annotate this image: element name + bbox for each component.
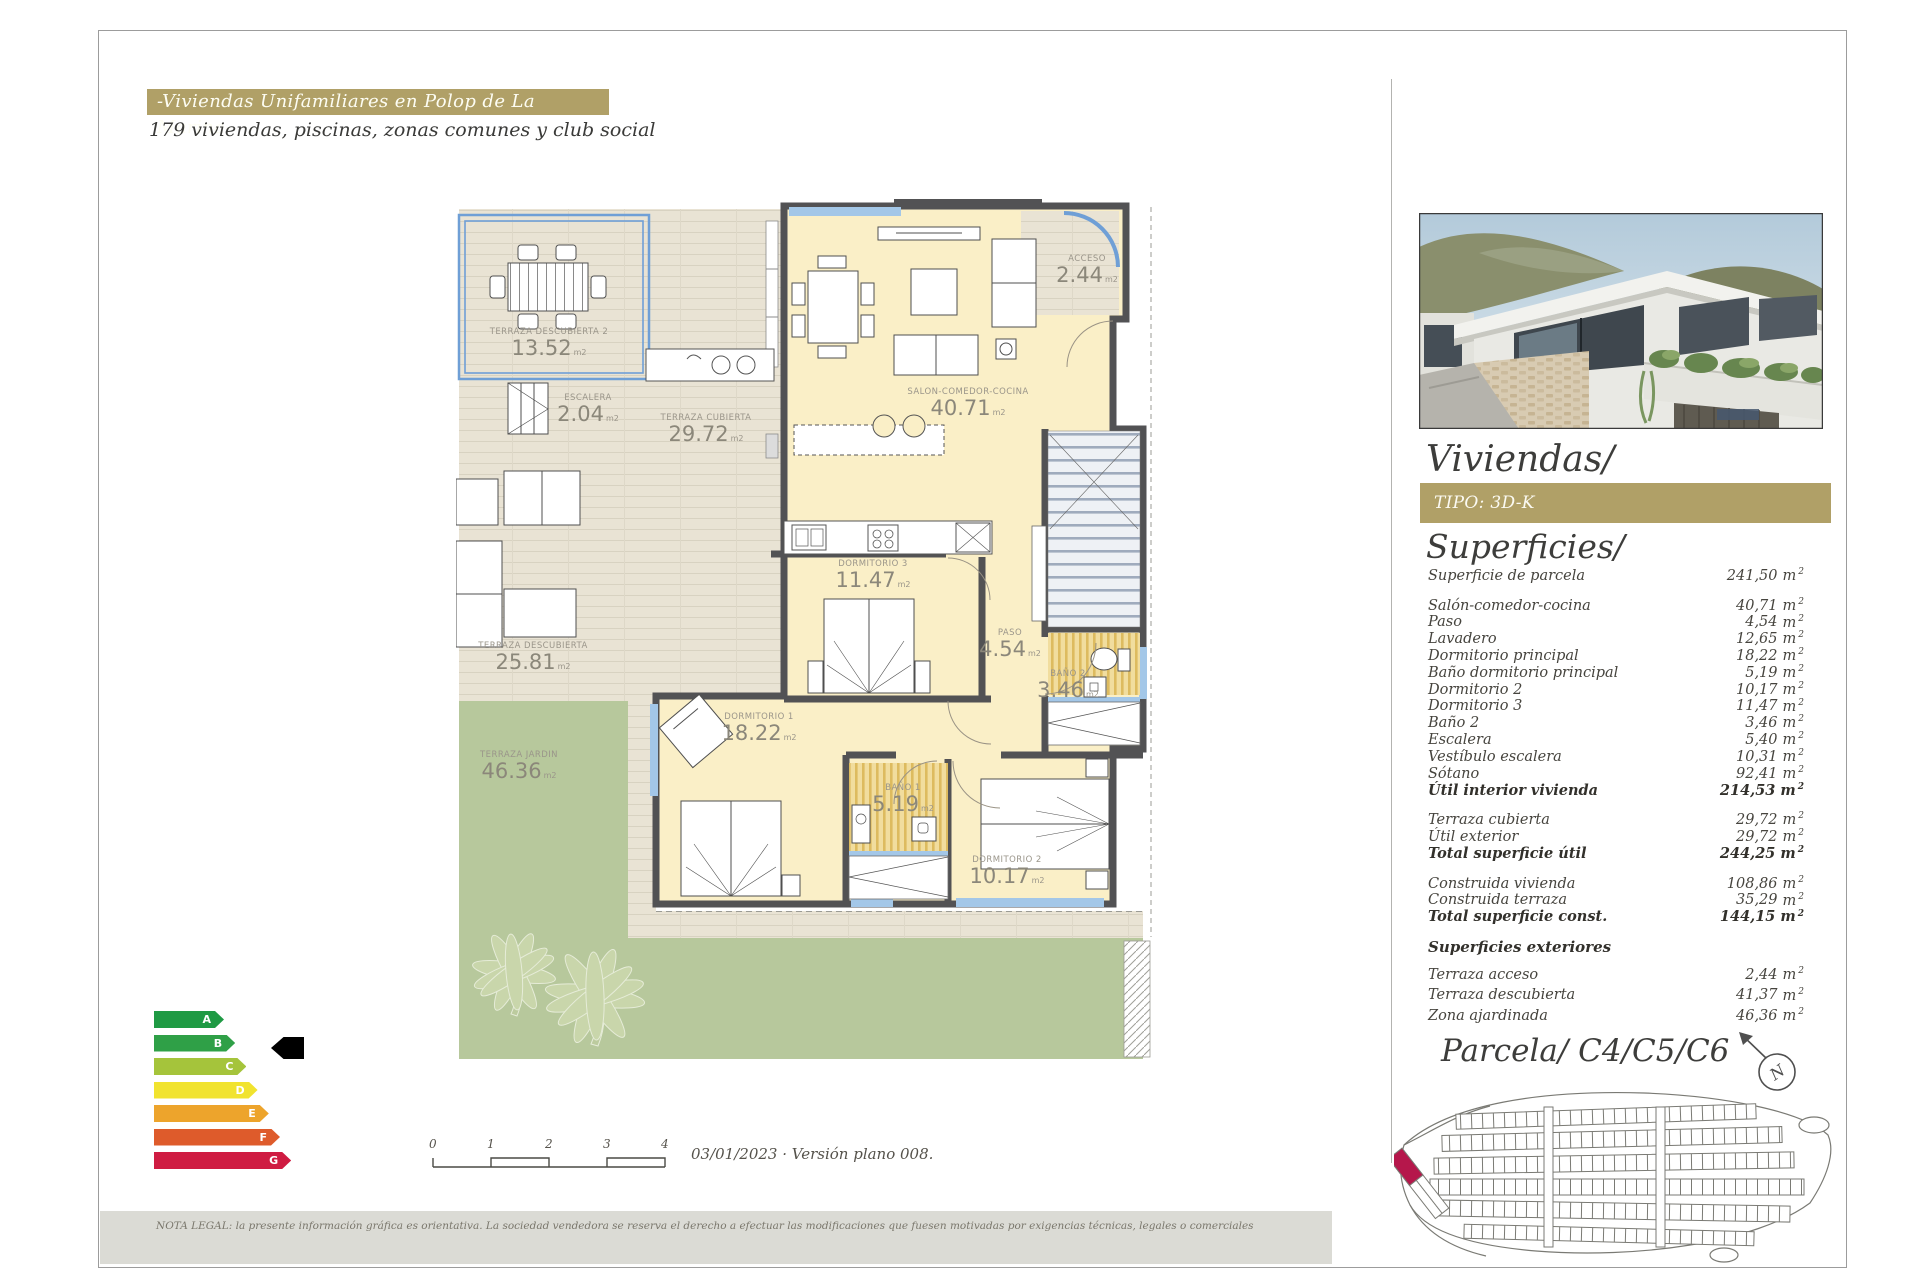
surface-label: Construida vivienda bbox=[1428, 876, 1575, 892]
surface-value: 18,22m2 bbox=[1714, 647, 1804, 664]
superficies-row: Terraza descubierta41,37m2 bbox=[1428, 987, 1804, 1008]
room-area: 46.36m2 bbox=[480, 760, 558, 787]
surface-value: 40,71m2 bbox=[1714, 597, 1804, 614]
site-plan-map bbox=[1394, 1083, 1839, 1275]
room-label-acceso: ACCESO2.44m2 bbox=[1056, 254, 1118, 291]
surface-value: 3,46m2 bbox=[1714, 714, 1804, 731]
room-label-bano-1: BAÑO 15.19m2 bbox=[872, 783, 934, 820]
surface-label: Terraza descubierta bbox=[1428, 987, 1575, 1003]
project-title: Viviendas/ bbox=[1426, 439, 1614, 480]
surface-label: Terraza acceso bbox=[1428, 967, 1538, 983]
room-area: 2.04m2 bbox=[557, 403, 619, 430]
superficies-group: Salón-comedor-cocina40,71m2Paso4,54m2Lav… bbox=[1428, 597, 1804, 799]
legal-note: NOTA LEGAL: la presente información gráf… bbox=[156, 1220, 1306, 1232]
superficies-title: Superficies/ bbox=[1426, 527, 1625, 566]
surface-value: 10,31m2 bbox=[1714, 748, 1804, 765]
brochure-page: { "header": { "title": "-Viviendas Unifa… bbox=[0, 0, 1920, 1280]
floor-plan: TERRAZA DESCUBIERTA 213.52m2ESCALERA2.04… bbox=[456, 199, 1156, 1079]
room-area: 2.44m2 bbox=[1056, 264, 1118, 291]
scale-tick: 0 bbox=[429, 1137, 437, 1151]
room-label-escalera: ESCALERA2.04m2 bbox=[557, 393, 619, 430]
room-label-salon-comedor-cocina: SALON-COMEDOR-COCINA40.71m2 bbox=[907, 387, 1028, 424]
energy-bars: ABCDEFG bbox=[154, 1011, 364, 1169]
room-label-dormitorio-3: DORMITORIO 311.47m2 bbox=[835, 559, 910, 596]
surface-label: Paso bbox=[1428, 614, 1462, 630]
energy-grade-G: G bbox=[154, 1152, 291, 1169]
surface-label: Escalera bbox=[1428, 732, 1492, 748]
energy-grade-F: F bbox=[154, 1129, 280, 1146]
scale-tick: 1 bbox=[487, 1137, 495, 1151]
surface-label: Salón-comedor-cocina bbox=[1428, 598, 1591, 614]
surface-value: 11,47m2 bbox=[1714, 698, 1804, 715]
surface-value: 214,53m2 bbox=[1714, 782, 1804, 799]
superficies-row: Dormitorio 210,17m2 bbox=[1428, 681, 1804, 698]
surface-label: Lavadero bbox=[1428, 631, 1497, 647]
surface-value: 46,36m2 bbox=[1714, 1007, 1804, 1024]
page-sheet: -Viviendas Unifamiliares en Polop de La … bbox=[98, 30, 1847, 1268]
room-label-terraza-descubierta: TERRAZA DESCUBIERTA25.81m2 bbox=[478, 641, 588, 678]
scale-tick: 3 bbox=[603, 1137, 611, 1151]
surface-label: Útil interior vivienda bbox=[1428, 782, 1598, 799]
superficies-group-header: Superficies exteriores bbox=[1428, 938, 1804, 960]
surface-label: Sótano bbox=[1428, 766, 1479, 782]
superficies-row: Zona ajardinada46,36m2 bbox=[1428, 1007, 1804, 1028]
surface-label: Dormitorio 2 bbox=[1428, 682, 1522, 698]
superficies-row: Baño dormitorio principal5,19m2 bbox=[1428, 664, 1804, 681]
version-note: 03/01/2023 · Versión plano 008. bbox=[691, 1145, 933, 1163]
superficies-row: Dormitorio principal18,22m2 bbox=[1428, 647, 1804, 664]
room-label-terraza-cubierta: TERRAZA CUBIERTA29.72m2 bbox=[661, 413, 752, 450]
room-area: 40.71m2 bbox=[907, 397, 1028, 424]
surface-label: Dormitorio principal bbox=[1428, 648, 1579, 664]
superficies-row: Útil interior vivienda214,53m2 bbox=[1428, 782, 1804, 799]
scale-tick: 2 bbox=[545, 1137, 553, 1151]
room-area: 4.54m2 bbox=[979, 638, 1041, 665]
room-label-dormitorio-1: DORMITORIO 118.22m2 bbox=[721, 712, 796, 749]
surface-value: 41,37m2 bbox=[1714, 987, 1804, 1004]
surface-value: 5,19m2 bbox=[1714, 664, 1804, 681]
superficies-row: Paso4,54m2 bbox=[1428, 614, 1804, 631]
surface-value: 35,29m2 bbox=[1714, 892, 1804, 909]
surface-label: Terraza cubierta bbox=[1428, 812, 1550, 828]
subtitle: 179 viviendas, piscinas, zonas comunes y… bbox=[149, 119, 655, 141]
superficies-row: Vestíbulo escalera10,31m2 bbox=[1428, 748, 1804, 765]
superficies-row: Escalera5,40m2 bbox=[1428, 731, 1804, 748]
scale-tick: 4 bbox=[661, 1137, 669, 1151]
superficies-row: Lavadero12,65m2 bbox=[1428, 630, 1804, 647]
energy-grade-B: B bbox=[154, 1035, 235, 1052]
surface-value: 144,15m2 bbox=[1714, 908, 1804, 925]
surface-label: Superficie de parcela bbox=[1428, 568, 1585, 584]
superficies-row: Terraza cubierta29,72m2 bbox=[1428, 811, 1804, 828]
surface-value: 108,86m2 bbox=[1714, 875, 1804, 892]
surface-label: Vestíbulo escalera bbox=[1428, 749, 1562, 765]
parcela-title: Parcela/ C4/C5/C6 bbox=[1441, 1033, 1729, 1069]
energy-grade-D: D bbox=[154, 1082, 258, 1099]
surface-label: Construida terraza bbox=[1428, 892, 1567, 908]
room-area: 29.72m2 bbox=[661, 423, 752, 450]
surface-value: 2,44m2 bbox=[1714, 966, 1804, 983]
energy-rating-label: ABCDEFG bbox=[154, 1011, 364, 1183]
surface-label: Baño dormitorio principal bbox=[1428, 665, 1618, 681]
superficies-group: Superficies exterioresTerraza acceso2,44… bbox=[1428, 938, 1804, 1028]
surface-label: Baño 2 bbox=[1428, 715, 1479, 731]
staircase bbox=[1032, 431, 1140, 627]
panel-divider bbox=[1391, 79, 1392, 1163]
surface-value: 10,17m2 bbox=[1714, 681, 1804, 698]
surface-label: Útil exterior bbox=[1428, 829, 1518, 845]
superficies-group: Superficie de parcela241,50m2 bbox=[1428, 567, 1804, 584]
room-label-bano-2: BAÑO 23.46m2 bbox=[1037, 669, 1099, 706]
surface-value: 92,41m2 bbox=[1714, 765, 1804, 782]
surface-label: Total superficie útil bbox=[1428, 845, 1587, 862]
room-area: 3.46m2 bbox=[1037, 679, 1099, 706]
superficies-row: Construida terraza35,29m2 bbox=[1428, 892, 1804, 909]
superficies-group: Terraza cubierta29,72m2Útil exterior29,7… bbox=[1428, 811, 1804, 861]
room-area: 11.47m2 bbox=[835, 569, 910, 596]
surface-label: Total superficie const. bbox=[1428, 908, 1607, 925]
energy-grade-A: A bbox=[154, 1011, 224, 1028]
superficies-table: Superficie de parcela241,50m2Salón-comed… bbox=[1428, 567, 1804, 1041]
surface-value: 241,50m2 bbox=[1714, 567, 1804, 584]
room-area: 25.81m2 bbox=[478, 651, 588, 678]
tipo-banner: TIPO: 3D-K bbox=[1420, 483, 1831, 523]
superficies-row: Dormitorio 311,47m2 bbox=[1428, 698, 1804, 715]
energy-grade-E: E bbox=[154, 1105, 269, 1122]
shower1 bbox=[849, 851, 948, 899]
room-label-terraza-descubierta-2: TERRAZA DESCUBIERTA 213.52m2 bbox=[490, 327, 609, 364]
room-area: 13.52m2 bbox=[490, 337, 609, 364]
superficies-row: Baño 23,46m2 bbox=[1428, 714, 1804, 731]
room-area: 18.22m2 bbox=[721, 722, 796, 749]
surface-value: 29,72m2 bbox=[1714, 828, 1804, 845]
legal-strip: NOTA LEGAL: la presente información gráf… bbox=[100, 1211, 1332, 1264]
title-banner: -Viviendas Unifamiliares en Polop de La … bbox=[147, 89, 609, 115]
room-label-terraza-jardin: TERRAZA JARDIN46.36m2 bbox=[480, 750, 558, 787]
surface-value: 244,25m2 bbox=[1714, 845, 1804, 862]
room-label-dormitorio-2: DORMITORIO 210.17m2 bbox=[969, 855, 1044, 892]
house-render-photo bbox=[1419, 213, 1823, 429]
surface-label: Dormitorio 3 bbox=[1428, 698, 1522, 714]
surface-label: Zona ajardinada bbox=[1428, 1008, 1548, 1024]
scale-bar: 01234 bbox=[429, 1137, 674, 1173]
superficies-group: Construida vivienda108,86m2Construida te… bbox=[1428, 875, 1804, 925]
superficies-row: Útil exterior29,72m2 bbox=[1428, 828, 1804, 845]
surface-value: 12,65m2 bbox=[1714, 630, 1804, 647]
superficies-row: Total superficie const.144,15m2 bbox=[1428, 908, 1804, 925]
surface-value: 5,40m2 bbox=[1714, 731, 1804, 748]
superficies-row: Terraza acceso2,44m2 bbox=[1428, 966, 1804, 987]
superficies-row: Salón-comedor-cocina40,71m2 bbox=[1428, 597, 1804, 614]
room-label-paso: PASO4.54m2 bbox=[979, 628, 1041, 665]
room-area: 5.19m2 bbox=[872, 793, 934, 820]
superficies-row: Sótano92,41m2 bbox=[1428, 765, 1804, 782]
superficies-row: Construida vivienda108,86m2 bbox=[1428, 875, 1804, 892]
superficies-row: Superficie de parcela241,50m2 bbox=[1428, 567, 1804, 584]
surface-value: 4,54m2 bbox=[1714, 614, 1804, 631]
surface-value: 29,72m2 bbox=[1714, 811, 1804, 828]
energy-grade-C: C bbox=[154, 1058, 246, 1075]
superficies-row: Total superficie útil244,25m2 bbox=[1428, 845, 1804, 862]
room-area: 10.17m2 bbox=[969, 865, 1044, 892]
